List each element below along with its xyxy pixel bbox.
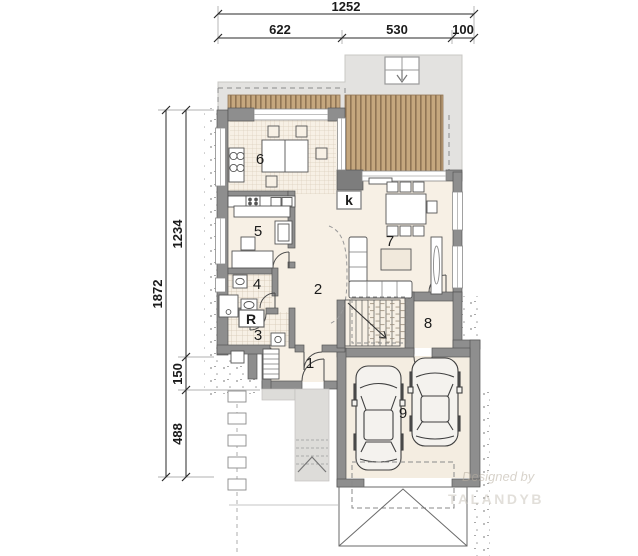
watermark: Designed by TALANDYB — [448, 469, 544, 507]
floor-plan-page: 1252 622 530 100 1872 1234 150 488 1 2 3… — [0, 0, 638, 556]
room-label-2: 2 — [314, 281, 322, 298]
room-label-4: 4 — [253, 276, 261, 293]
dim-left-upper: 1234 — [170, 219, 185, 249]
dim-left-middle: 150 — [170, 363, 185, 385]
dim-left-lower: 488 — [170, 423, 185, 445]
room-label-1: 1 — [306, 355, 314, 372]
fireplace-label: k — [345, 192, 353, 208]
dim-top-right: 100 — [452, 22, 474, 37]
boiler-label: R — [246, 311, 256, 327]
floor-plan-canvas: 1252 622 530 100 1872 1234 150 488 1 2 3… — [0, 0, 638, 556]
room-label-8: 8 — [424, 315, 432, 332]
room-label-5: 5 — [254, 223, 262, 240]
car-2 — [408, 358, 462, 446]
dim-top-total: 1252 — [332, 0, 361, 14]
room-label-7: 7 — [386, 233, 394, 250]
dim-top-middle: 530 — [386, 22, 408, 37]
watermark-line1: Designed by — [462, 469, 536, 484]
room-label-9: 9 — [399, 405, 407, 422]
chimney-block — [337, 170, 363, 190]
room-label-6: 6 — [256, 151, 264, 168]
entry-arrow-marker — [385, 57, 419, 84]
watermark-line2: TALANDYB — [448, 491, 544, 507]
room-label-3: 3 — [254, 327, 262, 344]
car-1 — [352, 366, 405, 470]
utility-room-fixtures — [271, 333, 285, 346]
dim-top-left: 622 — [269, 22, 291, 37]
fence-posts — [228, 391, 246, 556]
dim-left-total: 1872 — [150, 280, 165, 309]
